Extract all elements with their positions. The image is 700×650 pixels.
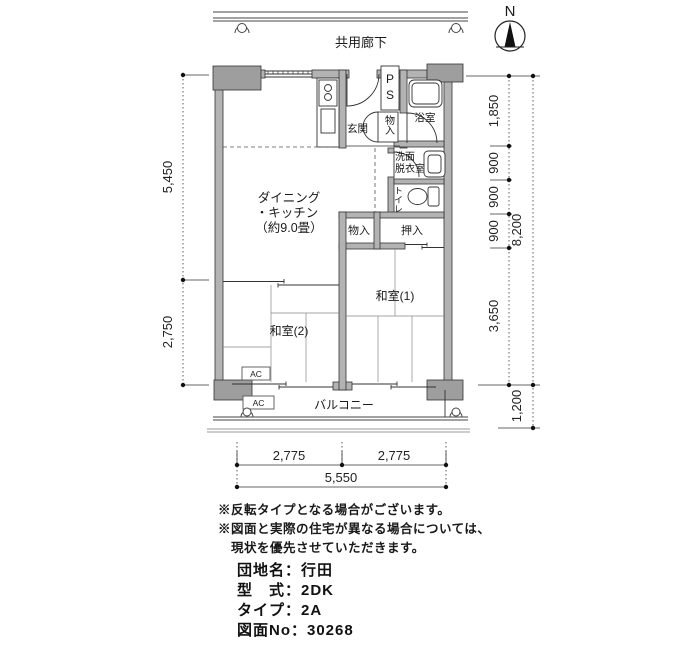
sliding-door-oshiire-icon [405, 243, 444, 250]
dim-label-right-900c: 900 [486, 220, 501, 242]
dimension-bottom: 2,775 2,775 5,550 [235, 442, 448, 489]
railing-post-icon [238, 24, 247, 33]
dimension-left: 5,450 2,750 [160, 73, 209, 387]
floorplan-page: 共用廊下 N [0, 0, 700, 650]
kitchen-window-icon [265, 71, 312, 77]
burner-icon [325, 85, 332, 92]
north-arrow-icon: N [495, 3, 525, 51]
dim-label-right-1850: 1,850 [486, 95, 501, 128]
railing-post-icon [452, 408, 460, 416]
pillar-top-right [427, 64, 463, 82]
pillar-top-left [213, 66, 261, 90]
property-plan-type: タイプ：2A [237, 601, 354, 621]
sliding-window-washitsu1-icon [352, 382, 436, 390]
room-label-genkan: 玄関 [347, 122, 368, 135]
room-label-washroom-line2: 脱衣室 [395, 162, 425, 175]
common-corridor: 共用廊下 [213, 12, 468, 50]
room-label-dk-line1: ダイニング [258, 190, 321, 205]
dim-label-bottom-total: 5,550 [325, 470, 358, 485]
ac-label-indoor: AC [250, 369, 262, 379]
sink-icon [321, 109, 335, 133]
dimension-right: 1,850 900 900 900 3,650 8,200 1,200 [466, 74, 540, 430]
wall-left [215, 70, 223, 390]
wall-closet-bottom [339, 243, 405, 249]
ac-label-outdoor: AC [253, 398, 265, 408]
dim-label-right-total: 8,200 [509, 214, 524, 247]
stove-icon [319, 80, 337, 106]
washbasin-icon [424, 151, 445, 177]
burner-icon [325, 94, 332, 101]
room-label-storage-upper: 物入 [383, 114, 395, 135]
room-label-washitsu2: 和室(2) [270, 323, 309, 338]
entry-door-icon [347, 74, 379, 106]
dim-label-left-upper: 5,450 [160, 161, 175, 194]
note-line: 現状を優先させていただきます。 [218, 539, 490, 558]
room-label-bath: 浴室 [415, 111, 436, 124]
wall-closet-top [339, 212, 444, 218]
railing-post-icon [452, 24, 461, 33]
room-label-dk-line3: （約9.0畳） [255, 220, 322, 235]
dim-label-right-900a: 900 [486, 152, 501, 174]
sliding-door-dk-washitsu2-icon [223, 279, 339, 288]
room-label-toilet: トイレ [393, 186, 403, 213]
disclaimer-notes: ※反転タイプとなる場合がございます。 ※図面と実際の住宅が異なる場合については、… [218, 501, 490, 558]
dim-label-bottom-left: 2,775 [273, 448, 306, 463]
wall-room-divider [339, 212, 346, 390]
wall-washroom [388, 148, 394, 153]
tatami-lines [223, 249, 444, 382]
dim-label-left-lower: 2,750 [160, 316, 175, 349]
room-label-ps: PS [383, 72, 397, 104]
room-label-dk-line2: ・キッチン [256, 206, 319, 220]
room-label-washitsu1: 和室(1) [376, 288, 415, 303]
property-drawing-no: 図面No：30268 [237, 621, 354, 641]
wall-closet-divider [374, 212, 380, 249]
room-label-storage: 物入 [348, 223, 370, 237]
wall-right [444, 70, 452, 390]
property-type: 型 式：2DK [237, 581, 354, 601]
dim-label-right-balcony: 1,200 [509, 390, 524, 423]
dim-label-right-3650: 3,650 [486, 300, 501, 333]
wall-bath-bottom [394, 141, 444, 147]
wall-bath [400, 70, 407, 113]
property-danchi-name: 団地名：行田 [237, 561, 354, 581]
kitchen-counter-icon [317, 78, 339, 147]
dim-label-right-900b: 900 [486, 186, 501, 208]
wall-entry [339, 70, 346, 148]
compass-n-label: N [505, 3, 516, 20]
railing-post-icon [243, 408, 251, 416]
tatami-washitsu1 [346, 249, 444, 382]
note-line: ※反転タイプとなる場合がございます。 [218, 501, 490, 520]
room-label-washroom-line1: 洗面 [395, 151, 415, 163]
bathtub-icon [409, 80, 442, 107]
toilet-icon [408, 187, 439, 206]
room-label-oshiire: 押入 [401, 223, 423, 237]
property-info: 団地名：行田 型 式：2DK タイプ：2A 図面No：30268 [237, 561, 354, 641]
dim-label-bottom-right: 2,775 [378, 448, 411, 463]
corridor-label: 共用廊下 [335, 35, 387, 50]
room-label-balcony: バルコニー [314, 398, 374, 412]
note-line: ※図面と実際の住宅が異なる場合については、 [218, 520, 490, 539]
wall-toilet [394, 179, 444, 184]
